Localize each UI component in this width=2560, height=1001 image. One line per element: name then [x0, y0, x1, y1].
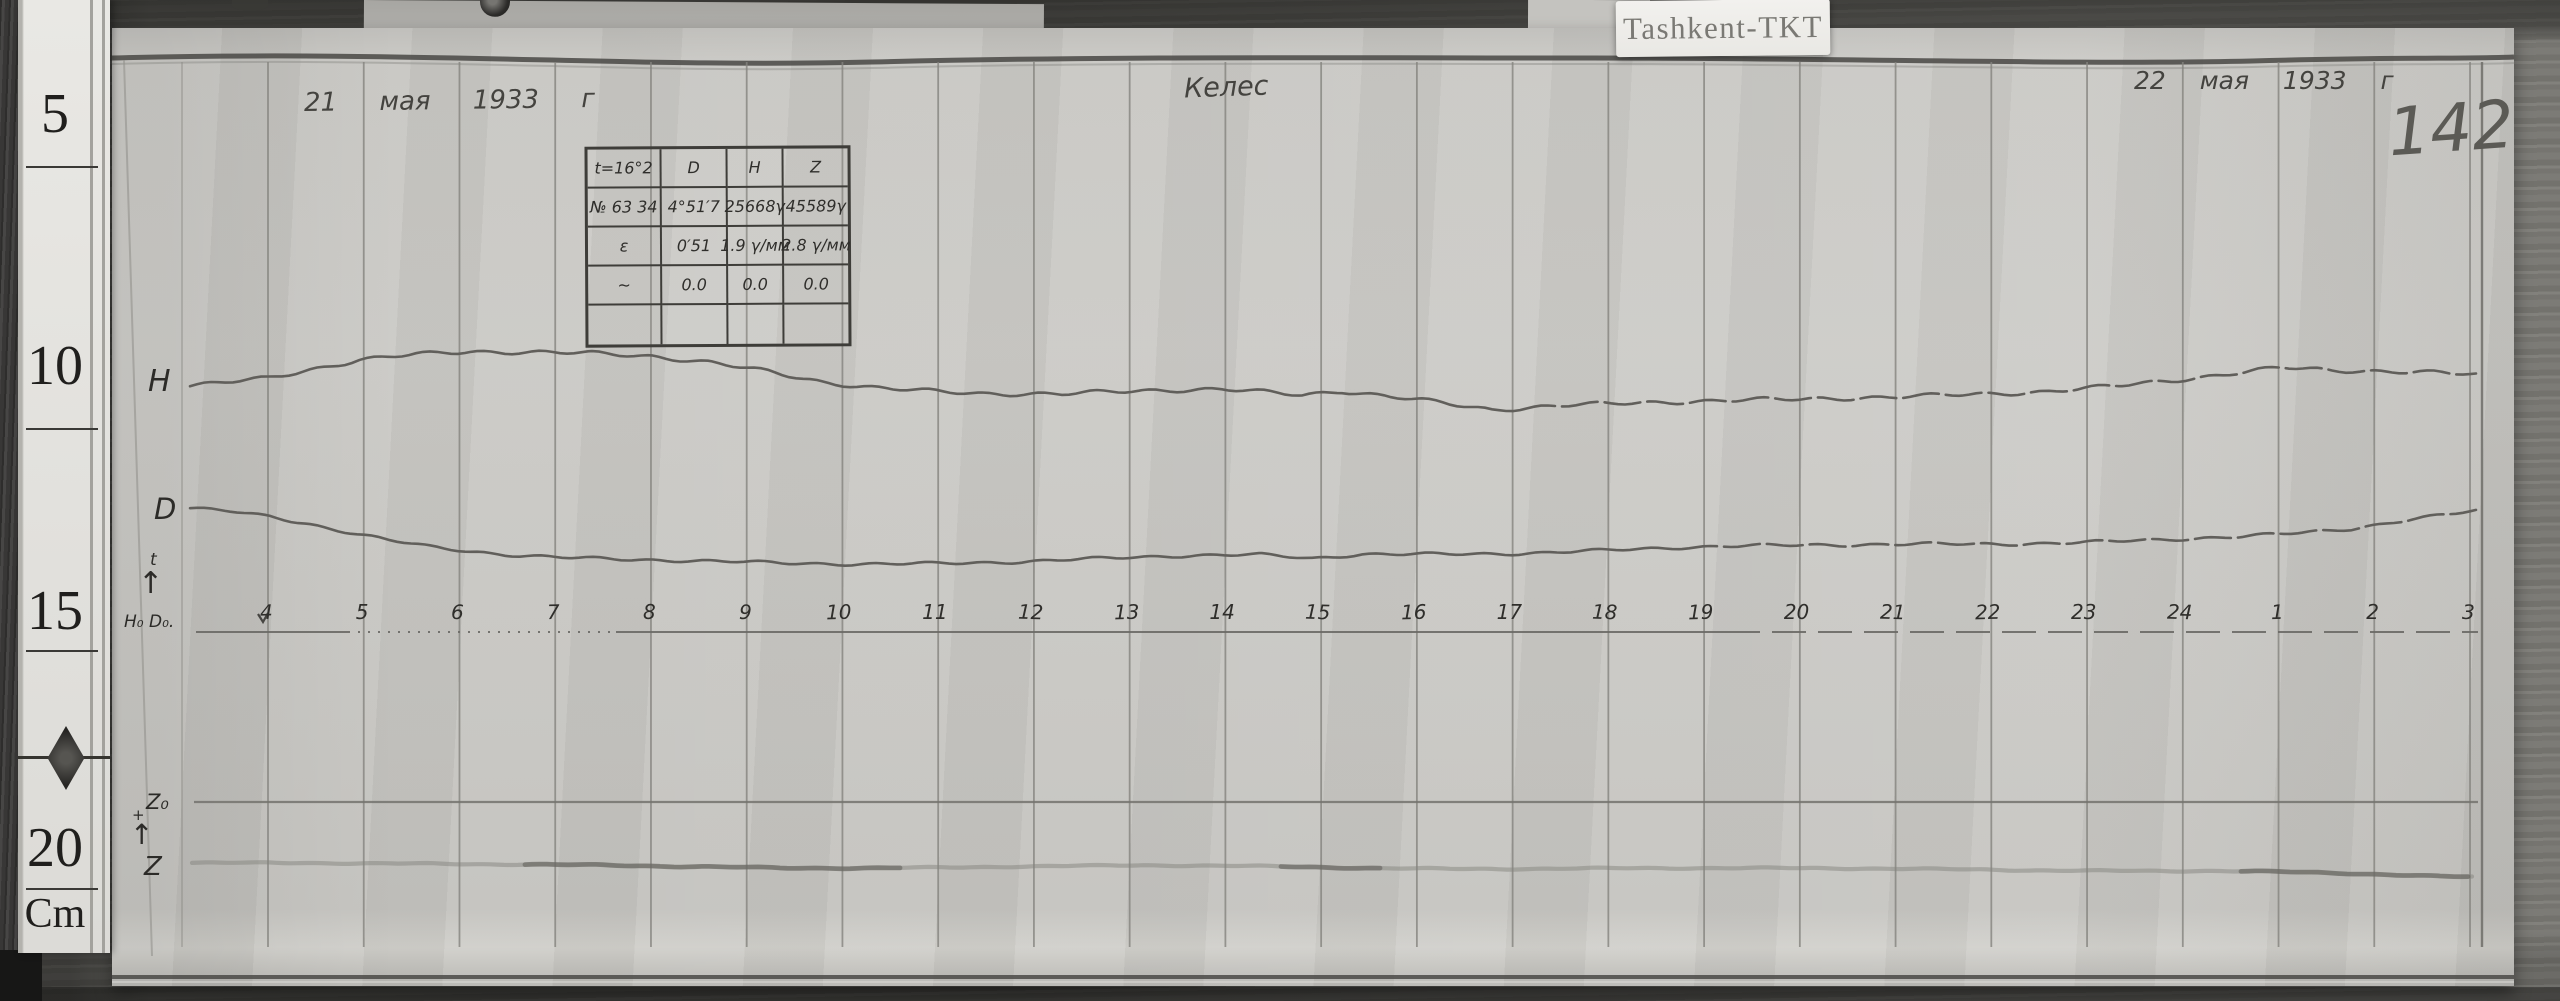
date-right: 22 мая 1933 г: [2134, 66, 2394, 95]
hour-label-2: 2: [2366, 600, 2379, 624]
table-cell: № 63 34: [588, 188, 662, 227]
ruler-diamond-marker: [44, 726, 88, 790]
ruler-tick: [26, 428, 98, 430]
up-arrow-icon: ↑: [130, 818, 153, 851]
hour-label-1: 1: [2270, 600, 2283, 624]
table-cell: 0.0: [784, 265, 848, 304]
table-cell: ~: [588, 266, 662, 305]
hour-label-19: 19: [1688, 600, 1714, 625]
table-cell: [588, 305, 662, 344]
table-cell: 1.9 γ/мм: [728, 227, 784, 266]
hour-label-12: 12: [1018, 600, 1044, 625]
table-cell: [728, 305, 784, 344]
table-cell: 45589γ: [784, 187, 848, 226]
table-cell: 2.8 γ/мм: [784, 226, 848, 265]
table-cell: 0.0: [662, 266, 728, 305]
drawing-pin: [480, 0, 510, 17]
ruler: 5 10 15 20 Cm: [18, 0, 110, 953]
table-cell: 0′51: [662, 227, 728, 266]
hour-label-10: 10: [826, 600, 852, 625]
table-cell: [662, 305, 728, 344]
baseline-label-z0: Z₀: [146, 790, 169, 814]
table-cell: D: [661, 149, 727, 188]
ruler-tick: [26, 888, 98, 890]
ruler-tick: [26, 166, 98, 168]
date-left: 21 мая 1933 г: [304, 84, 595, 118]
scale-table: t=16°2 D H Z № 63 34 4°51′7 25668γ 45589…: [584, 145, 851, 347]
hour-label-5: 5: [356, 600, 369, 624]
trace-label-d: D: [154, 492, 176, 526]
hour-label-4: 4: [260, 600, 273, 624]
hour-label-8: 8: [643, 600, 656, 624]
ruler-mark-5: 5: [18, 86, 92, 142]
hour-label-24: 24: [2166, 600, 2192, 625]
ruler-mark-20: 20: [18, 820, 92, 876]
ruler-unit-cm: Cm: [18, 893, 92, 935]
ruler-tick: [26, 650, 98, 652]
magnetogram-photo: 5 10 15 20 Cm Tashkent-TKT 21 мая 1933 г…: [0, 0, 2560, 1001]
hour-label-13: 13: [1113, 600, 1139, 625]
hour-label-17: 17: [1497, 600, 1522, 624]
drawing-pin-shadow: [232, 0, 268, 11]
table-cell: 25668γ: [728, 188, 784, 227]
hour-label-11: 11: [922, 600, 947, 624]
magnetogram-paper: [112, 28, 2514, 986]
hour-label-15: 15: [1305, 600, 1331, 625]
up-arrow-icon: ↑: [138, 566, 163, 601]
table-cell: t=16°2: [587, 149, 661, 188]
table-cell: Z: [783, 148, 847, 187]
hour-label-3: 3: [2462, 600, 2475, 624]
wood-table-left-edge: [0, 0, 18, 1001]
ruler-mark-10: 10: [18, 338, 92, 394]
trace-label-z: Z: [144, 852, 162, 882]
hour-label-6: 6: [451, 600, 464, 624]
hour-label-18: 18: [1592, 600, 1618, 625]
hour-label-14: 14: [1209, 600, 1234, 624]
recording-chart: [112, 28, 2514, 986]
table-cell: 4°51′7: [662, 188, 728, 227]
sheet-number: 142: [2385, 86, 2516, 172]
station-label: Tashkent-TKT: [1616, 0, 1831, 57]
table-cell: 0.0: [728, 266, 784, 305]
trace-label-h: H: [148, 364, 171, 399]
station-name-handwritten: Келес: [1183, 71, 1269, 105]
hour-label-22: 22: [1975, 600, 2001, 625]
hour-label-9: 9: [738, 600, 751, 624]
table-cell: [784, 304, 848, 343]
shadow-patch: [0, 950, 42, 1001]
table-cell: H: [727, 149, 783, 188]
baseline-label-h0d0: H₀ D₀.: [124, 612, 174, 632]
hour-label-21: 21: [1879, 600, 1905, 625]
hour-label-20: 20: [1784, 600, 1809, 624]
ruler-mark-15: 15: [18, 583, 92, 639]
hour-label-23: 23: [2071, 600, 2096, 624]
hour-label-16: 16: [1401, 600, 1427, 625]
table-cell: ε: [588, 227, 662, 266]
hour-label-7: 7: [547, 600, 560, 624]
